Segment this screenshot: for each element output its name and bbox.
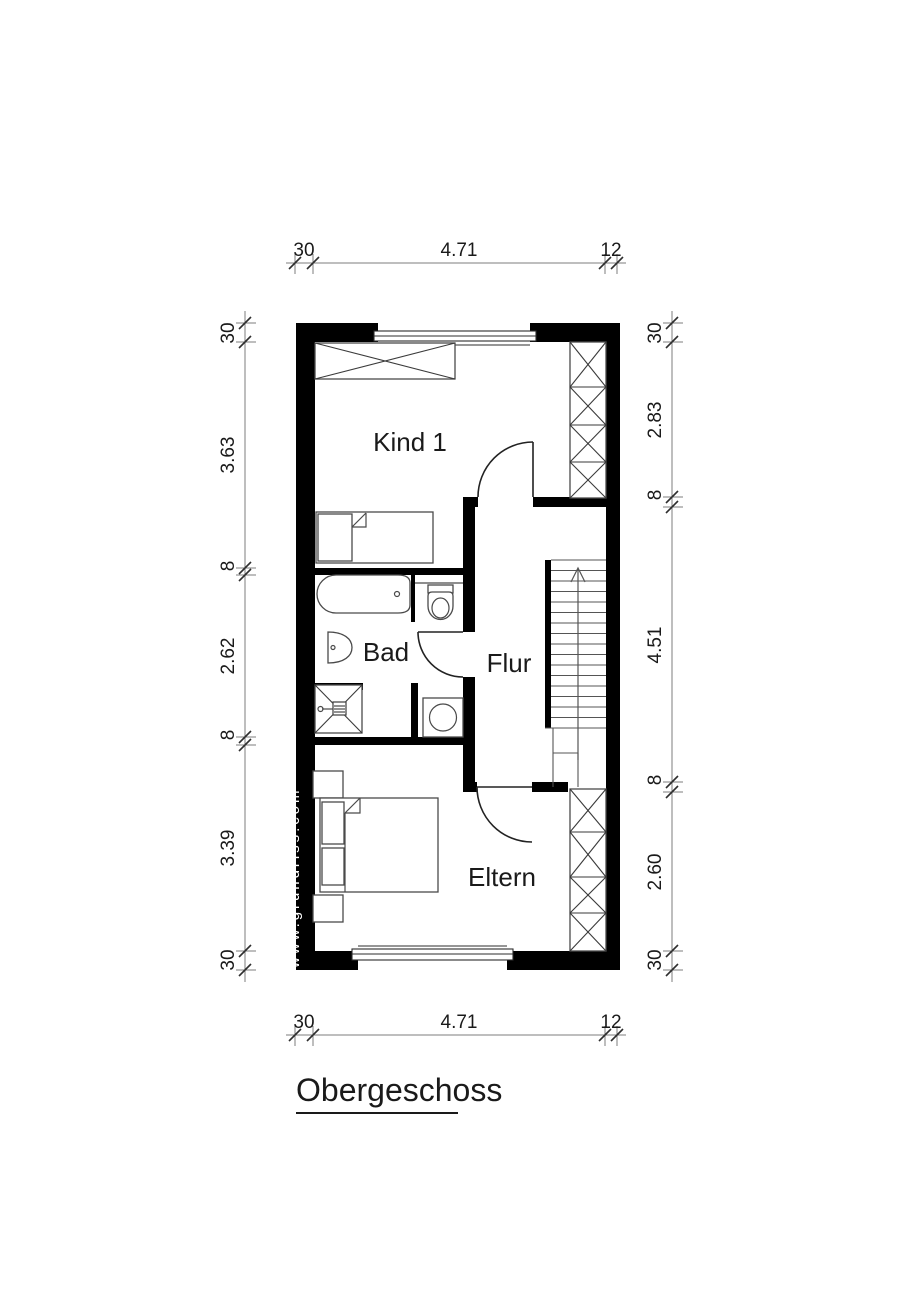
furniture-kind1 (316, 512, 433, 563)
plan-title: Obergeschoss (296, 1072, 502, 1108)
dim-left-30b: 30 (218, 949, 239, 970)
dim-right-260: 2.60 (645, 854, 666, 891)
toilet (415, 583, 463, 620)
room-label-bad: Bad (363, 637, 409, 667)
nightstand-bottom (313, 895, 343, 922)
closet-kind1 (570, 342, 606, 498)
furniture-eltern (313, 771, 438, 922)
washing-machine (423, 698, 463, 737)
wardrobe-kind1 (315, 343, 455, 379)
dim-bottom-12: 12 (600, 1012, 621, 1033)
dim-left-8a: 8 (218, 561, 239, 572)
dim-left-30a: 30 (218, 322, 239, 343)
closet-eltern (570, 789, 606, 951)
door-eltern (477, 787, 532, 842)
room-label-eltern: Eltern (468, 862, 536, 892)
dim-left-363: 3.63 (218, 437, 239, 474)
wall-stair-stringer (545, 560, 551, 728)
bathtub (317, 575, 410, 613)
washbasin (328, 632, 352, 663)
dim-right-30a: 30 (645, 322, 666, 343)
title-block: Obergeschoss (296, 1072, 502, 1113)
dim-left-8b: 8 (218, 730, 239, 741)
dim-top-471: 4.71 (441, 240, 478, 261)
door-bad (418, 632, 463, 677)
dim-bottom-471: 4.71 (441, 1012, 478, 1033)
floor-plan-drawing: Kind 1 Bad Flur Eltern 30 4.71 12 30 4.7… (0, 0, 920, 1306)
dim-top-30: 30 (293, 240, 314, 261)
dim-right-30b: 30 (645, 949, 666, 970)
dim-right-8a: 8 (645, 490, 666, 501)
wall-bad-flur-upper (463, 497, 475, 632)
floor-plan-page: Kind 1 Bad Flur Eltern 30 4.71 12 30 4.7… (0, 0, 920, 1306)
dim-right-451: 4.51 (645, 627, 666, 664)
wall-bad-eltern (315, 737, 463, 745)
dimension-right: 30 2.83 8 4.51 8 2.60 30 (645, 311, 683, 982)
dim-left-262: 2.62 (218, 638, 239, 675)
dimension-bottom: 30 4.71 12 (286, 1012, 626, 1046)
wall-right (606, 323, 620, 970)
wall-kind1-bad (315, 568, 463, 575)
dim-top-12: 12 (600, 240, 621, 261)
dimension-top: 30 4.71 12 (286, 240, 626, 274)
wall-flur-eltern-left (463, 782, 477, 792)
dim-left-339: 3.39 (218, 830, 239, 867)
dimension-left: 30 3.63 8 2.62 8 3.39 30 (218, 311, 256, 982)
room-label-kind1: Kind 1 (373, 427, 447, 457)
dim-right-8b: 8 (645, 775, 666, 786)
dim-bottom-30: 30 (293, 1012, 314, 1033)
wall-wc-partition (411, 575, 415, 622)
bed-single (316, 512, 433, 563)
shower (315, 685, 362, 733)
wall-laundry-stub (411, 683, 418, 737)
nightstand-top (313, 771, 343, 798)
door-kind1 (478, 442, 533, 497)
wall-flur-eltern-right (532, 782, 568, 792)
bed-double (320, 798, 438, 892)
dim-right-283: 2.83 (645, 402, 666, 439)
room-label-flur: Flur (487, 648, 532, 678)
staircase (545, 560, 606, 787)
wall-bad-flur-lower (463, 677, 475, 792)
